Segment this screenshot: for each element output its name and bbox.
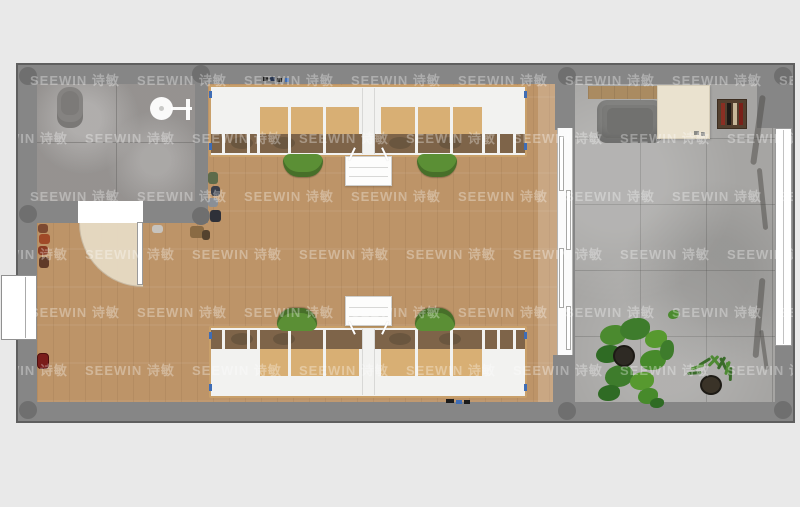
desk-center-spine xyxy=(362,329,375,395)
floor-plan-canvas: SEEWIN 诗敏SEEWIN 诗敏SEEWIN 诗敏SEEWIN 诗敏SEEW… xyxy=(0,0,800,507)
glass-door-panel xyxy=(559,136,564,191)
glass-door-panel xyxy=(566,306,571,350)
bathroom-bottom-wall-right xyxy=(143,201,208,223)
glass-door-panel xyxy=(566,190,571,250)
desk-surface-left xyxy=(260,349,359,376)
fire-extinguisher xyxy=(37,353,49,369)
desk-leg-divider xyxy=(222,134,225,153)
desk-leg-divider xyxy=(513,330,516,349)
cabinet-drawer-line xyxy=(349,176,388,177)
shelf-item xyxy=(733,103,737,125)
desk-partition-divider xyxy=(257,329,260,395)
desk-end-marker xyxy=(209,91,212,98)
desk-center-spine xyxy=(362,88,375,154)
tucked-chair-shadow xyxy=(389,137,411,149)
right-wall-window-mullion xyxy=(783,130,784,344)
divider-wall-top xyxy=(555,84,575,130)
desk-partition-divider xyxy=(482,88,485,154)
desk-end-marker xyxy=(209,384,212,391)
shelf-item xyxy=(727,103,731,125)
side-room-desk xyxy=(657,85,710,139)
right-corner-wall-block xyxy=(757,84,793,128)
bookshelf xyxy=(717,99,747,129)
desk-partition-divider xyxy=(323,329,326,395)
desk-partition-divider xyxy=(288,329,291,395)
storage-cabinet-bottom xyxy=(345,296,392,326)
shower-valve xyxy=(186,99,190,120)
desk-partition-divider xyxy=(257,88,260,154)
desk-end-marker xyxy=(209,332,212,339)
tucked-chair-shadow xyxy=(273,137,295,149)
desk-partition-divider xyxy=(288,88,291,154)
desk-end-marker xyxy=(524,91,527,98)
wood-credenza xyxy=(588,86,667,99)
glass-partition xyxy=(557,128,573,355)
workstation-row-bottom xyxy=(209,326,527,398)
desk-surface-left xyxy=(260,107,359,134)
shower-head-center xyxy=(159,106,164,111)
toilet-lid xyxy=(61,91,79,115)
desk-partition-divider xyxy=(482,329,485,395)
main-entrance-opening xyxy=(1,275,37,340)
storage-cabinet-top xyxy=(345,156,392,186)
desk-partition-divider xyxy=(323,88,326,154)
desk-partition-divider xyxy=(415,88,418,154)
bathroom-right-wall xyxy=(195,65,208,223)
desk-surface-right xyxy=(381,107,482,134)
divider-wall-bottom xyxy=(553,355,575,402)
desk-end-marker xyxy=(524,332,527,339)
workstation-row-top xyxy=(209,85,527,157)
desk-leg-divider xyxy=(513,134,516,153)
cabinet-drawer-line xyxy=(349,316,388,317)
desk-partition-divider xyxy=(450,88,453,154)
shelf-item xyxy=(721,103,725,125)
desk-surface-right xyxy=(381,349,482,376)
bathroom-doorway xyxy=(78,201,143,223)
desk-leg-divider xyxy=(247,330,250,349)
tucked-chair-shadow xyxy=(389,333,411,345)
shelf-item xyxy=(739,103,743,125)
bathroom-door-leaf xyxy=(137,222,143,285)
desk-partition-divider xyxy=(415,329,418,395)
desk-end-marker xyxy=(524,384,527,391)
desk-leg-divider xyxy=(247,134,250,153)
desk-leg-divider xyxy=(222,330,225,349)
cabinet-drawer-line xyxy=(349,307,388,308)
lounge-chair-cushion xyxy=(607,108,653,134)
bathroom-bottom-wall-left xyxy=(37,201,78,223)
desk-end-marker xyxy=(209,143,212,150)
desk-leg-divider xyxy=(497,134,500,153)
desk-end-marker xyxy=(524,143,527,150)
bathroom-tile-joint xyxy=(37,142,195,143)
tucked-chair-shadow xyxy=(273,333,295,345)
main-entrance-door-line xyxy=(25,277,26,338)
desk-leg-divider xyxy=(497,330,500,349)
glass-door-panel xyxy=(559,248,564,308)
cabinet-drawer-line xyxy=(349,167,388,168)
desk-partition-divider xyxy=(450,329,453,395)
